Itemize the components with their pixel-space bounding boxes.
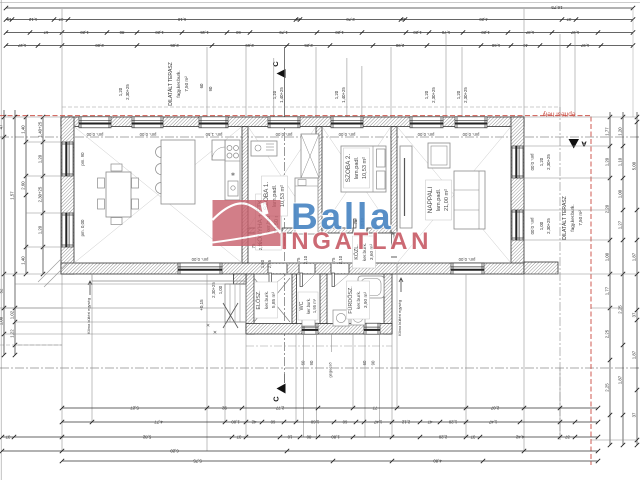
svg-text:60: 60 (342, 420, 347, 425)
svg-text:1,00: 1,00 (218, 285, 223, 294)
svg-text:2,30+25: 2,30+25 (546, 218, 551, 234)
svg-text:1,40+25: 1,40+25 (38, 121, 43, 137)
svg-text:pm. 0,00: pm. 0,00 (338, 132, 355, 137)
svg-text:2,05: 2,05 (170, 43, 179, 48)
svg-text:6,10: 6,10 (177, 17, 186, 22)
svg-text:2,30+25: 2,30+25 (38, 186, 43, 202)
svg-text:4,20: 4,20 (479, 17, 488, 22)
svg-text:1,20: 1,20 (335, 30, 344, 35)
svg-text:1,10: 1,10 (618, 157, 623, 166)
svg-text:NAPPALI: NAPPALI (427, 187, 434, 214)
svg-text:építési hely: építési hely (542, 111, 576, 118)
svg-text:1,77: 1,77 (605, 127, 610, 136)
svg-text:3,90 m²: 3,90 m² (363, 291, 369, 308)
svg-text:2,90: 2,90 (395, 43, 404, 48)
svg-text:ker.burk.: ker.burk. (356, 291, 362, 309)
svg-text:1,00: 1,00 (605, 252, 610, 261)
svg-text:2,77: 2,77 (275, 406, 284, 411)
svg-text:pm. 0,00: pm. 0,00 (458, 257, 475, 262)
svg-text:1,00: 1,00 (0, 316, 4, 325)
svg-text:10,53 m²: 10,53 m² (280, 185, 286, 207)
svg-text:1,27: 1,27 (17, 43, 26, 48)
svg-text:1,97: 1,97 (570, 30, 579, 35)
svg-text:C: C (271, 61, 280, 67)
svg-text:2,30+25: 2,30+25 (463, 87, 468, 103)
svg-text:6,20: 6,20 (170, 449, 179, 454)
svg-text:1,77: 1,77 (605, 286, 610, 295)
svg-text:✕: ✕ (213, 330, 217, 336)
svg-text:2,25: 2,25 (618, 305, 623, 314)
svg-text:pm. 0,00: pm. 0,00 (191, 257, 208, 262)
svg-text:7,50 m²: 7,50 m² (578, 210, 583, 226)
svg-text:gégecső: gégecső (328, 362, 333, 378)
svg-text:ker.burk.: ker.burk. (306, 298, 311, 314)
svg-text:77: 77 (372, 406, 377, 411)
svg-text:37: 37 (565, 435, 570, 440)
svg-text:37: 37 (236, 435, 241, 440)
svg-text:67: 67 (43, 30, 48, 35)
svg-text:80: 80 (306, 435, 311, 440)
svg-text:2,00: 2,00 (95, 43, 104, 48)
svg-text:ELŐSZ.: ELŐSZ. (255, 290, 262, 309)
svg-text:75: 75 (296, 257, 301, 262)
svg-text:1,27: 1,27 (618, 220, 623, 229)
svg-text:10: 10 (400, 17, 405, 22)
svg-text:pm. 0,00: pm. 0,00 (139, 132, 156, 137)
svg-text:15: 15 (6, 17, 11, 22)
svg-text:47: 47 (0, 124, 4, 129)
svg-text:60: 60 (236, 30, 241, 35)
svg-text:60: 60 (362, 360, 367, 365)
svg-text:pm. 0,00: pm. 0,00 (462, 132, 479, 137)
svg-text:1,47: 1,47 (488, 420, 497, 425)
svg-text:2,10: 2,10 (338, 255, 343, 264)
svg-text:2,30+25: 2,30+25 (546, 154, 551, 170)
svg-text:pm. 0,00: pm. 0,00 (86, 132, 103, 137)
svg-text:1,37: 1,37 (525, 30, 534, 35)
svg-text:pm. 0,00: pm. 0,00 (530, 154, 535, 171)
svg-text:2,30+25: 2,30+25 (431, 87, 436, 103)
svg-text:1,20: 1,20 (155, 30, 164, 35)
svg-text:2,60: 2,60 (21, 181, 26, 190)
svg-text:1,97: 1,97 (580, 43, 589, 48)
svg-text:1,79: 1,79 (279, 30, 288, 35)
svg-text:1,20: 1,20 (38, 225, 43, 234)
svg-text:5,82: 5,82 (142, 435, 151, 440)
svg-text:1,87: 1,87 (632, 252, 637, 261)
svg-text:DILATÁLT TERASZ: DILATÁLT TERASZ (561, 196, 568, 240)
svg-text:75: 75 (331, 257, 336, 262)
svg-text:2,30+25: 2,30+25 (125, 84, 130, 100)
svg-text:SZOBA 2.: SZOBA 2. (345, 154, 352, 183)
svg-text:1,80: 1,80 (260, 259, 265, 268)
svg-text:1,80: 1,80 (331, 435, 340, 440)
svg-text:10,53 m²: 10,53 m² (362, 157, 368, 179)
svg-text:lam.padl.: lam.padl. (436, 188, 442, 211)
svg-text:1,00: 1,00 (539, 221, 544, 230)
svg-text:1,20: 1,20 (448, 420, 457, 425)
svg-text:52: 52 (0, 288, 4, 293)
svg-text:fagy.ker.burk.: fagy.ker.burk. (570, 204, 575, 231)
svg-text:Klíma kültéri egység: Klíma kültéri egység (397, 300, 402, 336)
svg-text:A: A (581, 140, 587, 149)
svg-text:1,57: 1,57 (10, 191, 15, 200)
svg-text:42: 42 (251, 420, 256, 425)
svg-text:1,12: 1,12 (28, 17, 37, 22)
svg-text:37: 37 (470, 435, 475, 440)
svg-text:WC: WC (299, 301, 305, 310)
svg-text:1,20: 1,20 (272, 90, 277, 99)
svg-text:fagy.ker.burk.: fagy.ker.burk. (176, 70, 181, 97)
svg-text:80: 80 (119, 30, 124, 35)
svg-text:pm. 90: pm. 90 (80, 152, 85, 166)
svg-text:C: C (272, 396, 281, 402)
svg-text:1,60: 1,60 (310, 420, 319, 425)
svg-text:1,20: 1,20 (424, 90, 429, 99)
svg-text:2,07: 2,07 (490, 406, 499, 411)
svg-text:60: 60 (270, 420, 275, 425)
svg-text:37: 37 (632, 412, 637, 417)
svg-text:1,40: 1,40 (21, 256, 26, 265)
svg-text:10: 10 (295, 17, 300, 22)
svg-text:5,85 m²: 5,85 m² (271, 291, 277, 308)
svg-text:pm. 0,00: pm. 0,00 (80, 219, 85, 236)
svg-text:1,15: 1,15 (200, 30, 209, 35)
svg-text:1,70: 1,70 (441, 30, 450, 35)
svg-text:37: 37 (632, 312, 637, 317)
svg-text:1,00: 1,00 (231, 420, 240, 425)
svg-text:pm. 0,00: pm. 0,00 (417, 132, 434, 137)
svg-text:ker.burk.: ker.burk. (264, 291, 270, 309)
svg-text:4,80: 4,80 (433, 459, 442, 464)
svg-text:4,42: 4,42 (515, 435, 524, 440)
svg-text:1,20: 1,20 (118, 87, 123, 96)
svg-text:90: 90 (208, 86, 213, 91)
svg-text:21,00 m²: 21,00 m² (444, 189, 450, 211)
svg-text:60: 60 (199, 83, 204, 88)
svg-text:47: 47 (427, 420, 432, 425)
svg-text:1,60: 1,60 (491, 43, 500, 48)
svg-text:2,25: 2,25 (605, 329, 610, 338)
svg-text:1,47: 1,47 (373, 420, 382, 425)
svg-text:92: 92 (222, 406, 227, 411)
svg-text:1,22: 1,22 (10, 329, 15, 338)
svg-text:5,75: 5,75 (193, 459, 202, 464)
svg-text:1,20: 1,20 (605, 157, 610, 166)
svg-text:5,00: 5,00 (632, 161, 637, 170)
svg-text:1,95 m²: 1,95 m² (312, 298, 317, 313)
svg-text:2,20: 2,20 (438, 435, 447, 440)
svg-text:2,10: 2,10 (303, 255, 308, 264)
svg-text:1,40+25: 1,40+25 (279, 87, 284, 103)
svg-text:✱: ✱ (231, 172, 235, 178)
svg-text:1,87: 1,87 (618, 375, 623, 384)
svg-text:37: 37 (58, 17, 63, 22)
svg-text:✕: ✕ (206, 323, 210, 329)
svg-text:7,50 m²: 7,50 m² (184, 76, 189, 92)
svg-text:2,25: 2,25 (605, 383, 610, 392)
svg-text:16,75: 16,75 (551, 5, 563, 10)
svg-text:lam.padl.: lam.padl. (354, 156, 360, 179)
svg-text:FÜRDŐSZ.: FÜRDŐSZ. (347, 286, 354, 314)
svg-text:2,70: 2,70 (346, 17, 355, 22)
svg-text:2,20: 2,20 (605, 204, 610, 213)
svg-text:10: 10 (287, 435, 292, 440)
svg-text:1,87: 1,87 (632, 350, 637, 359)
svg-text:Klíma kültéri egység: Klíma kültéri egység (86, 298, 91, 334)
svg-text:1,20: 1,20 (38, 154, 43, 163)
svg-text:1,00: 1,00 (618, 189, 623, 198)
svg-text:1,20: 1,20 (334, 90, 339, 99)
svg-text:1,02: 1,02 (10, 310, 15, 319)
svg-text:+0,15: +0,15 (199, 299, 204, 311)
svg-text:2,12: 2,12 (401, 420, 410, 425)
svg-text:1,20: 1,20 (413, 30, 422, 35)
svg-text:60: 60 (301, 360, 306, 365)
svg-text:1,20: 1,20 (618, 127, 623, 136)
svg-text:37: 37 (5, 435, 10, 440)
svg-text:1,40: 1,40 (21, 125, 26, 134)
svg-text:37: 37 (566, 17, 571, 22)
svg-text:2,25: 2,25 (304, 43, 313, 48)
svg-text:90: 90 (371, 360, 376, 365)
svg-text:1,20: 1,20 (539, 157, 544, 166)
svg-text:1,20: 1,20 (481, 30, 490, 35)
svg-text:pm. 1,50: pm. 1,50 (205, 132, 222, 137)
svg-text:pm. 0,00: pm. 0,00 (530, 218, 535, 235)
svg-text:4,77: 4,77 (154, 420, 163, 425)
svg-text:1,20: 1,20 (80, 30, 89, 35)
svg-text:2,55: 2,55 (267, 259, 272, 268)
svg-text:INGATLAN: INGATLAN (281, 228, 432, 255)
svg-text:1,20: 1,20 (456, 90, 461, 99)
svg-text:pm. 0,00: pm. 0,00 (275, 132, 292, 137)
svg-text:1,40+25: 1,40+25 (341, 87, 346, 103)
svg-text:DILATÁLT TERASZ: DILATÁLT TERASZ (167, 62, 174, 106)
svg-text:40: 40 (523, 43, 528, 48)
svg-text:90: 90 (309, 360, 314, 365)
svg-text:5,27: 5,27 (130, 406, 139, 411)
